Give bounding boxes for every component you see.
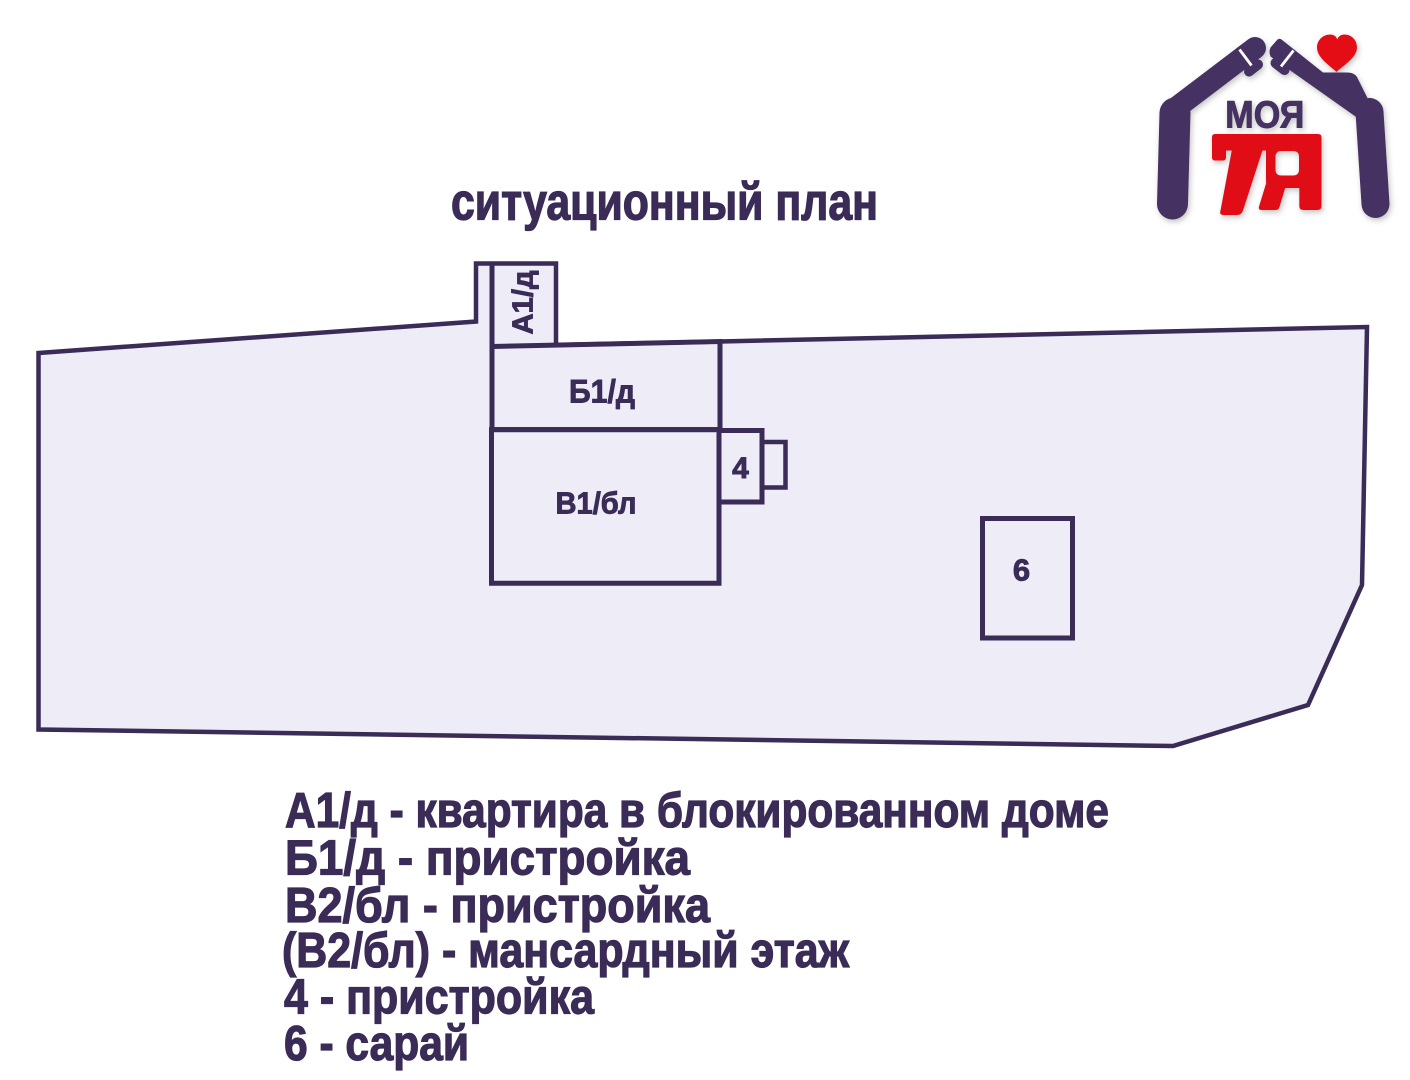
svg-text:МОЯ: МОЯ bbox=[1225, 95, 1304, 137]
svg-text:Б1/д: Б1/д bbox=[569, 374, 635, 410]
svg-text:А1/д: А1/д bbox=[507, 271, 539, 335]
svg-text:6: 6 bbox=[1013, 553, 1030, 588]
svg-text:В1/бл: В1/бл bbox=[556, 486, 637, 521]
svg-text:А1/д - квартира в блокированно: А1/д - квартира в блокированном доме bbox=[285, 784, 1109, 838]
svg-text:6 - сарай: 6 - сарай bbox=[284, 1017, 469, 1071]
svg-text:ситуационный план: ситуационный план bbox=[451, 174, 878, 232]
svg-text:Б1/д - пристройка: Б1/д - пристройка bbox=[285, 832, 691, 886]
svg-text:4: 4 bbox=[732, 452, 749, 485]
